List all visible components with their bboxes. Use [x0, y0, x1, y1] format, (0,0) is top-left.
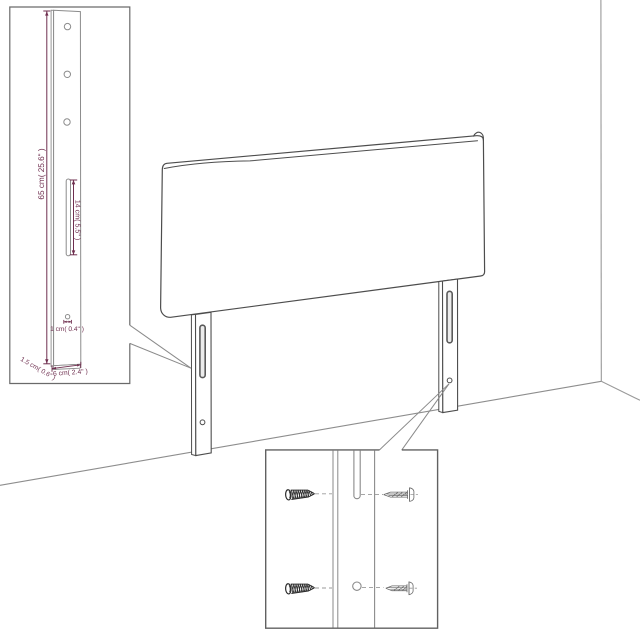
svg-text:1 cm( 0.4" ): 1 cm( 0.4" ) [50, 326, 84, 333]
svg-text:14 cm( 5.5" ): 14 cm( 5.5" ) [73, 200, 81, 240]
svg-text:65 cm( 25.6" ): 65 cm( 25.6" ) [37, 148, 46, 199]
